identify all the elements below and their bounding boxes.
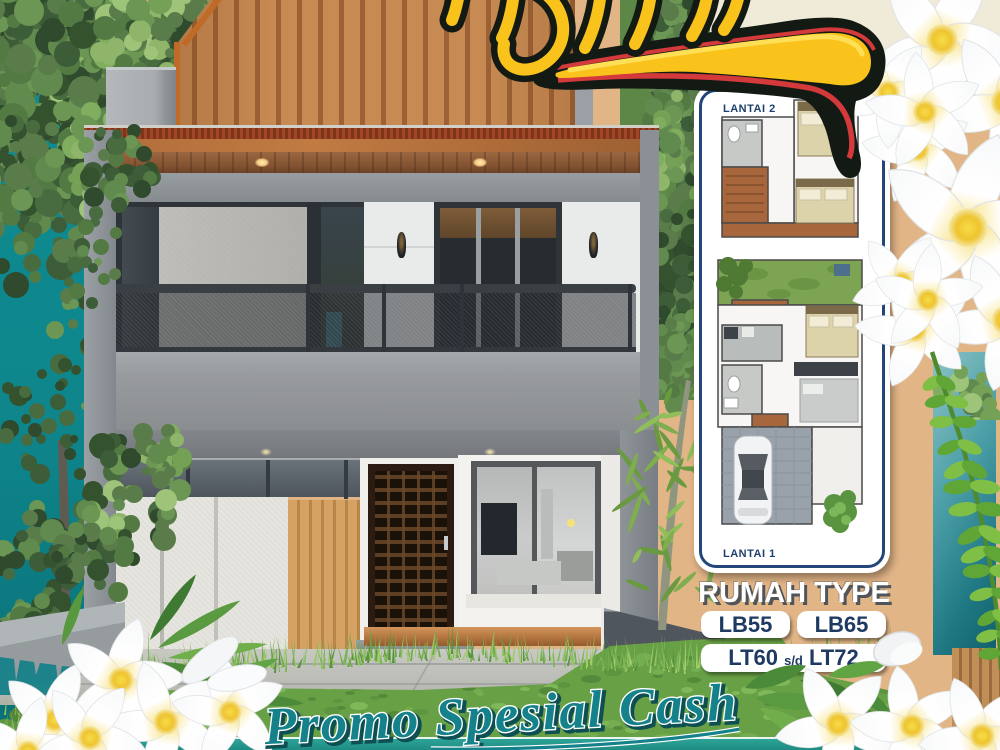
svg-text:LANTAI 1: LANTAI 1 — [723, 548, 776, 560]
